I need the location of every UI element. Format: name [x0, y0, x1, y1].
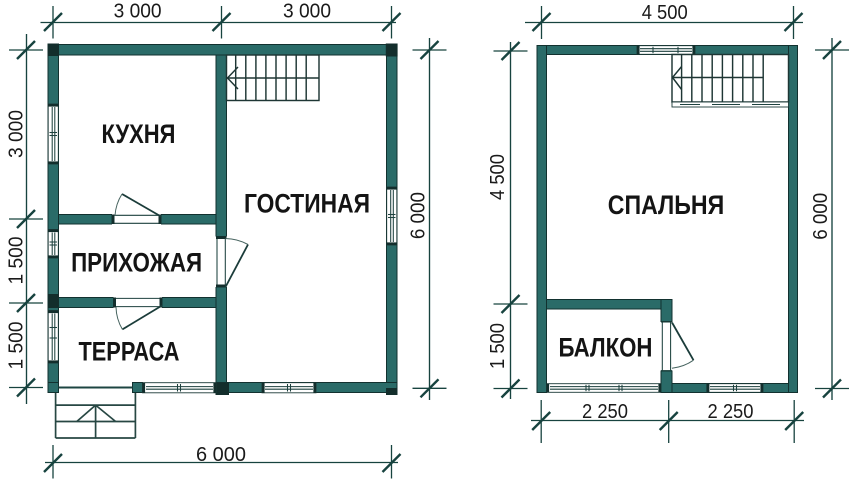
svg-text:ТЕРРАСА: ТЕРРАСА: [79, 337, 180, 367]
svg-text:6 000: 6 000: [810, 193, 832, 240]
svg-text:1 500: 1 500: [487, 323, 509, 369]
svg-text:ПРИХОЖАЯ: ПРИХОЖАЯ: [71, 248, 202, 278]
svg-text:СПАЛЬНЯ: СПАЛЬНЯ: [608, 190, 725, 220]
svg-text:6 000: 6 000: [196, 444, 246, 466]
svg-text:4 500: 4 500: [487, 154, 509, 200]
svg-text:КУХНЯ: КУХНЯ: [102, 119, 176, 149]
svg-text:4 500: 4 500: [642, 2, 688, 24]
svg-text:3 000: 3 000: [6, 110, 28, 158]
svg-text:ГОСТИНАЯ: ГОСТИНАЯ: [244, 189, 370, 219]
svg-text:3 000: 3 000: [283, 1, 331, 23]
svg-text:2 250: 2 250: [708, 401, 754, 423]
svg-text:3 000: 3 000: [114, 1, 162, 23]
svg-text:6 000: 6 000: [407, 192, 429, 239]
svg-text:БАЛКОН: БАЛКОН: [559, 333, 653, 363]
svg-text:1 500: 1 500: [6, 237, 28, 285]
svg-text:1 500: 1 500: [6, 322, 28, 370]
svg-text:2 250: 2 250: [582, 401, 628, 423]
